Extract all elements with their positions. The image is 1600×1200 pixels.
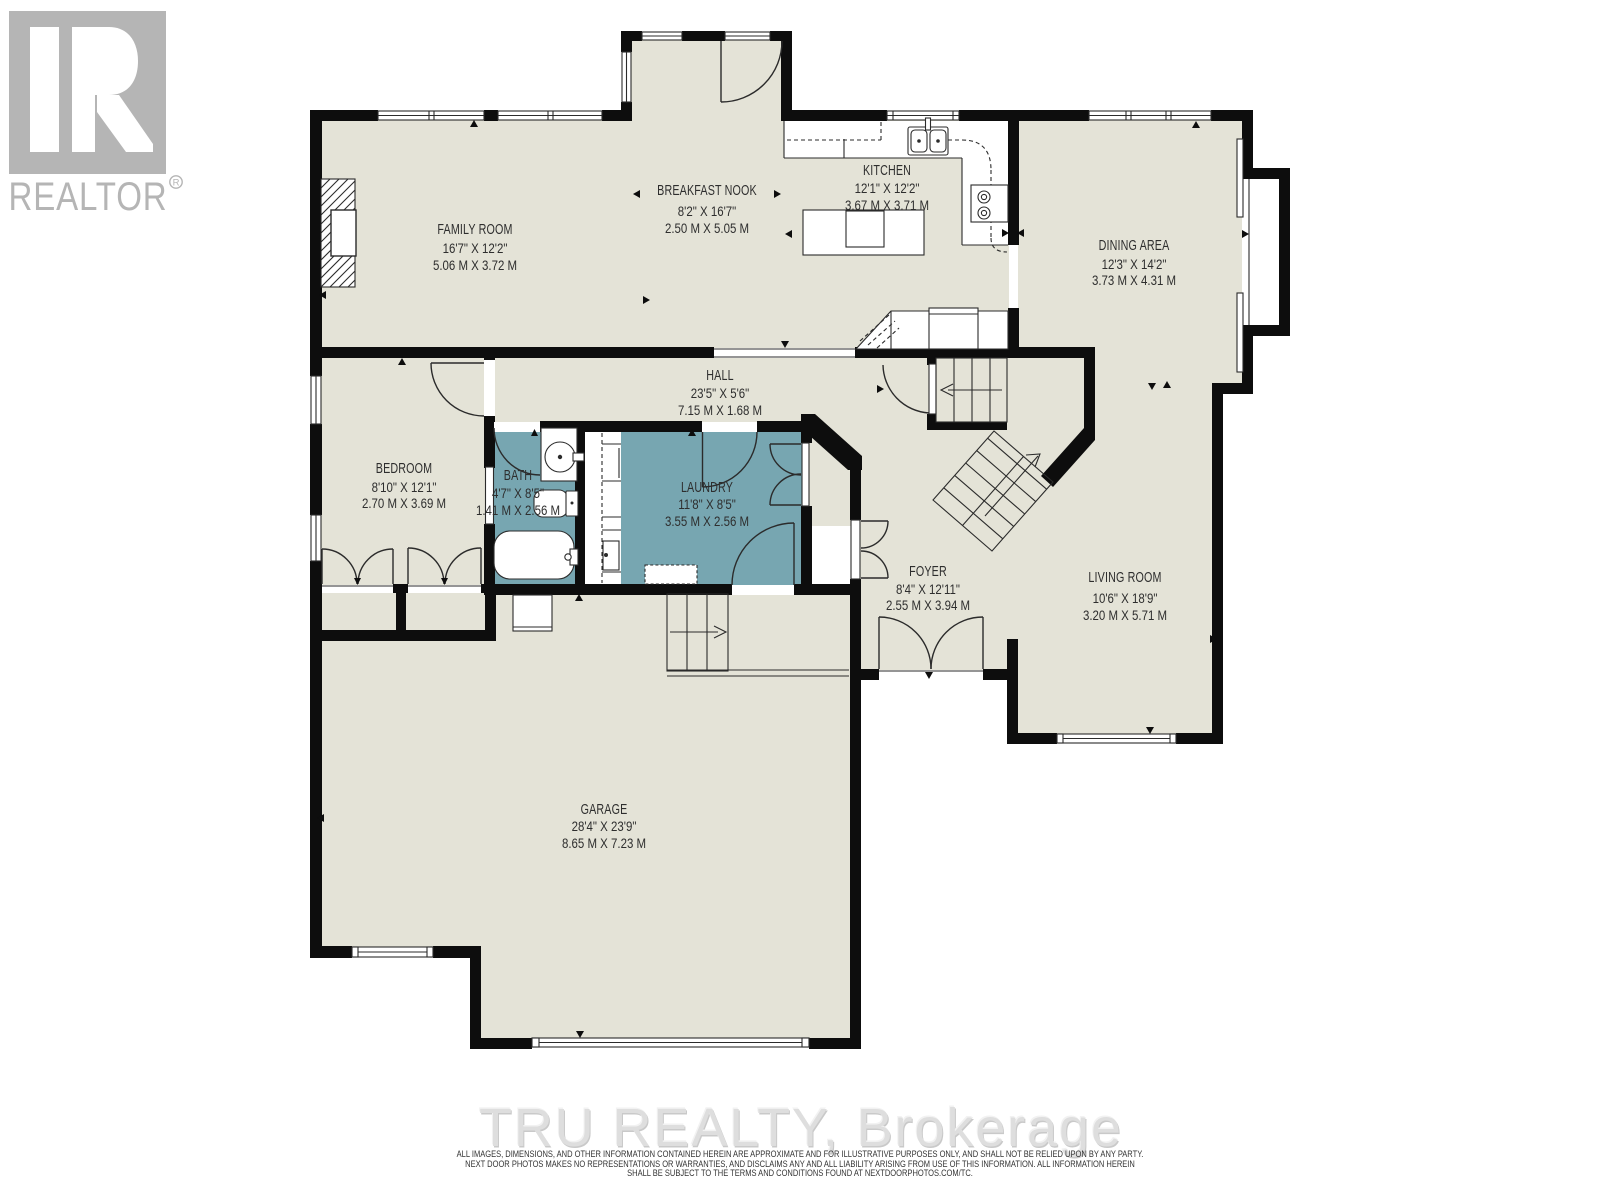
svg-text:HALL: HALL [706, 366, 733, 383]
svg-text:LIVING ROOM: LIVING ROOM [1088, 568, 1161, 585]
svg-text:SHALL BE SUBJECT TO THE TERMS: SHALL BE SUBJECT TO THE TERMS AND CONDIT… [627, 1167, 973, 1178]
svg-text:3.67 M X 3.71 M: 3.67 M X 3.71 M [845, 198, 929, 213]
svg-text:7.15 M X 1.68 M: 7.15 M X 1.68 M [678, 403, 762, 418]
svg-text:1.41 M X 2.56 M: 1.41 M X 2.56 M [476, 503, 560, 518]
svg-text:12'1" X 12'2": 12'1" X 12'2" [855, 181, 920, 196]
svg-text:3.73 M X 4.31 M: 3.73 M X 4.31 M [1092, 273, 1176, 288]
svg-text:10'6" X 18'9": 10'6" X 18'9" [1093, 591, 1158, 606]
svg-text:2.70 M X 3.69 M: 2.70 M X 3.69 M [362, 496, 446, 511]
svg-text:28'4" X 23'9": 28'4" X 23'9" [572, 819, 637, 834]
svg-text:5.06 M X 3.72 M: 5.06 M X 3.72 M [433, 258, 517, 273]
svg-text:BREAKFAST NOOK: BREAKFAST NOOK [657, 181, 757, 198]
svg-text:16'7" X 12'2": 16'7" X 12'2" [443, 241, 508, 256]
svg-text:FAMILY ROOM: FAMILY ROOM [437, 220, 512, 237]
svg-text:8'2" X 16'7": 8'2" X 16'7" [678, 204, 736, 219]
svg-text:4'7" X 8'5": 4'7" X 8'5" [492, 486, 544, 501]
svg-text:23'5" X 5'6": 23'5" X 5'6" [691, 386, 749, 401]
svg-text:12'3" X 14'2": 12'3" X 14'2" [1102, 257, 1167, 272]
svg-text:R: R [173, 178, 180, 189]
svg-text:GARAGE: GARAGE [581, 800, 628, 817]
svg-text:8'10" X 12'1": 8'10" X 12'1" [372, 480, 437, 495]
svg-text:DINING AREA: DINING AREA [1099, 236, 1170, 253]
svg-text:FOYER: FOYER [909, 562, 947, 579]
svg-text:KITCHEN: KITCHEN [863, 161, 911, 178]
svg-text:11'8" X 8'5": 11'8" X 8'5" [678, 497, 736, 512]
svg-text:BATH: BATH [504, 466, 532, 483]
svg-text:8.65 M X 7.23 M: 8.65 M X 7.23 M [562, 836, 646, 851]
svg-text:2.55 M X 3.94 M: 2.55 M X 3.94 M [886, 598, 970, 613]
svg-text:2.50 M X 5.05 M: 2.50 M X 5.05 M [665, 221, 749, 236]
svg-text:REALTOR: REALTOR [9, 175, 168, 219]
svg-text:LAUNDRY: LAUNDRY [681, 478, 733, 495]
svg-text:BEDROOM: BEDROOM [376, 459, 432, 476]
svg-text:3.55 M X 2.56 M: 3.55 M X 2.56 M [665, 514, 749, 529]
svg-text:3.20 M X 5.71 M: 3.20 M X 5.71 M [1083, 608, 1167, 623]
svg-text:8'4" X 12'11": 8'4" X 12'11" [896, 582, 960, 597]
